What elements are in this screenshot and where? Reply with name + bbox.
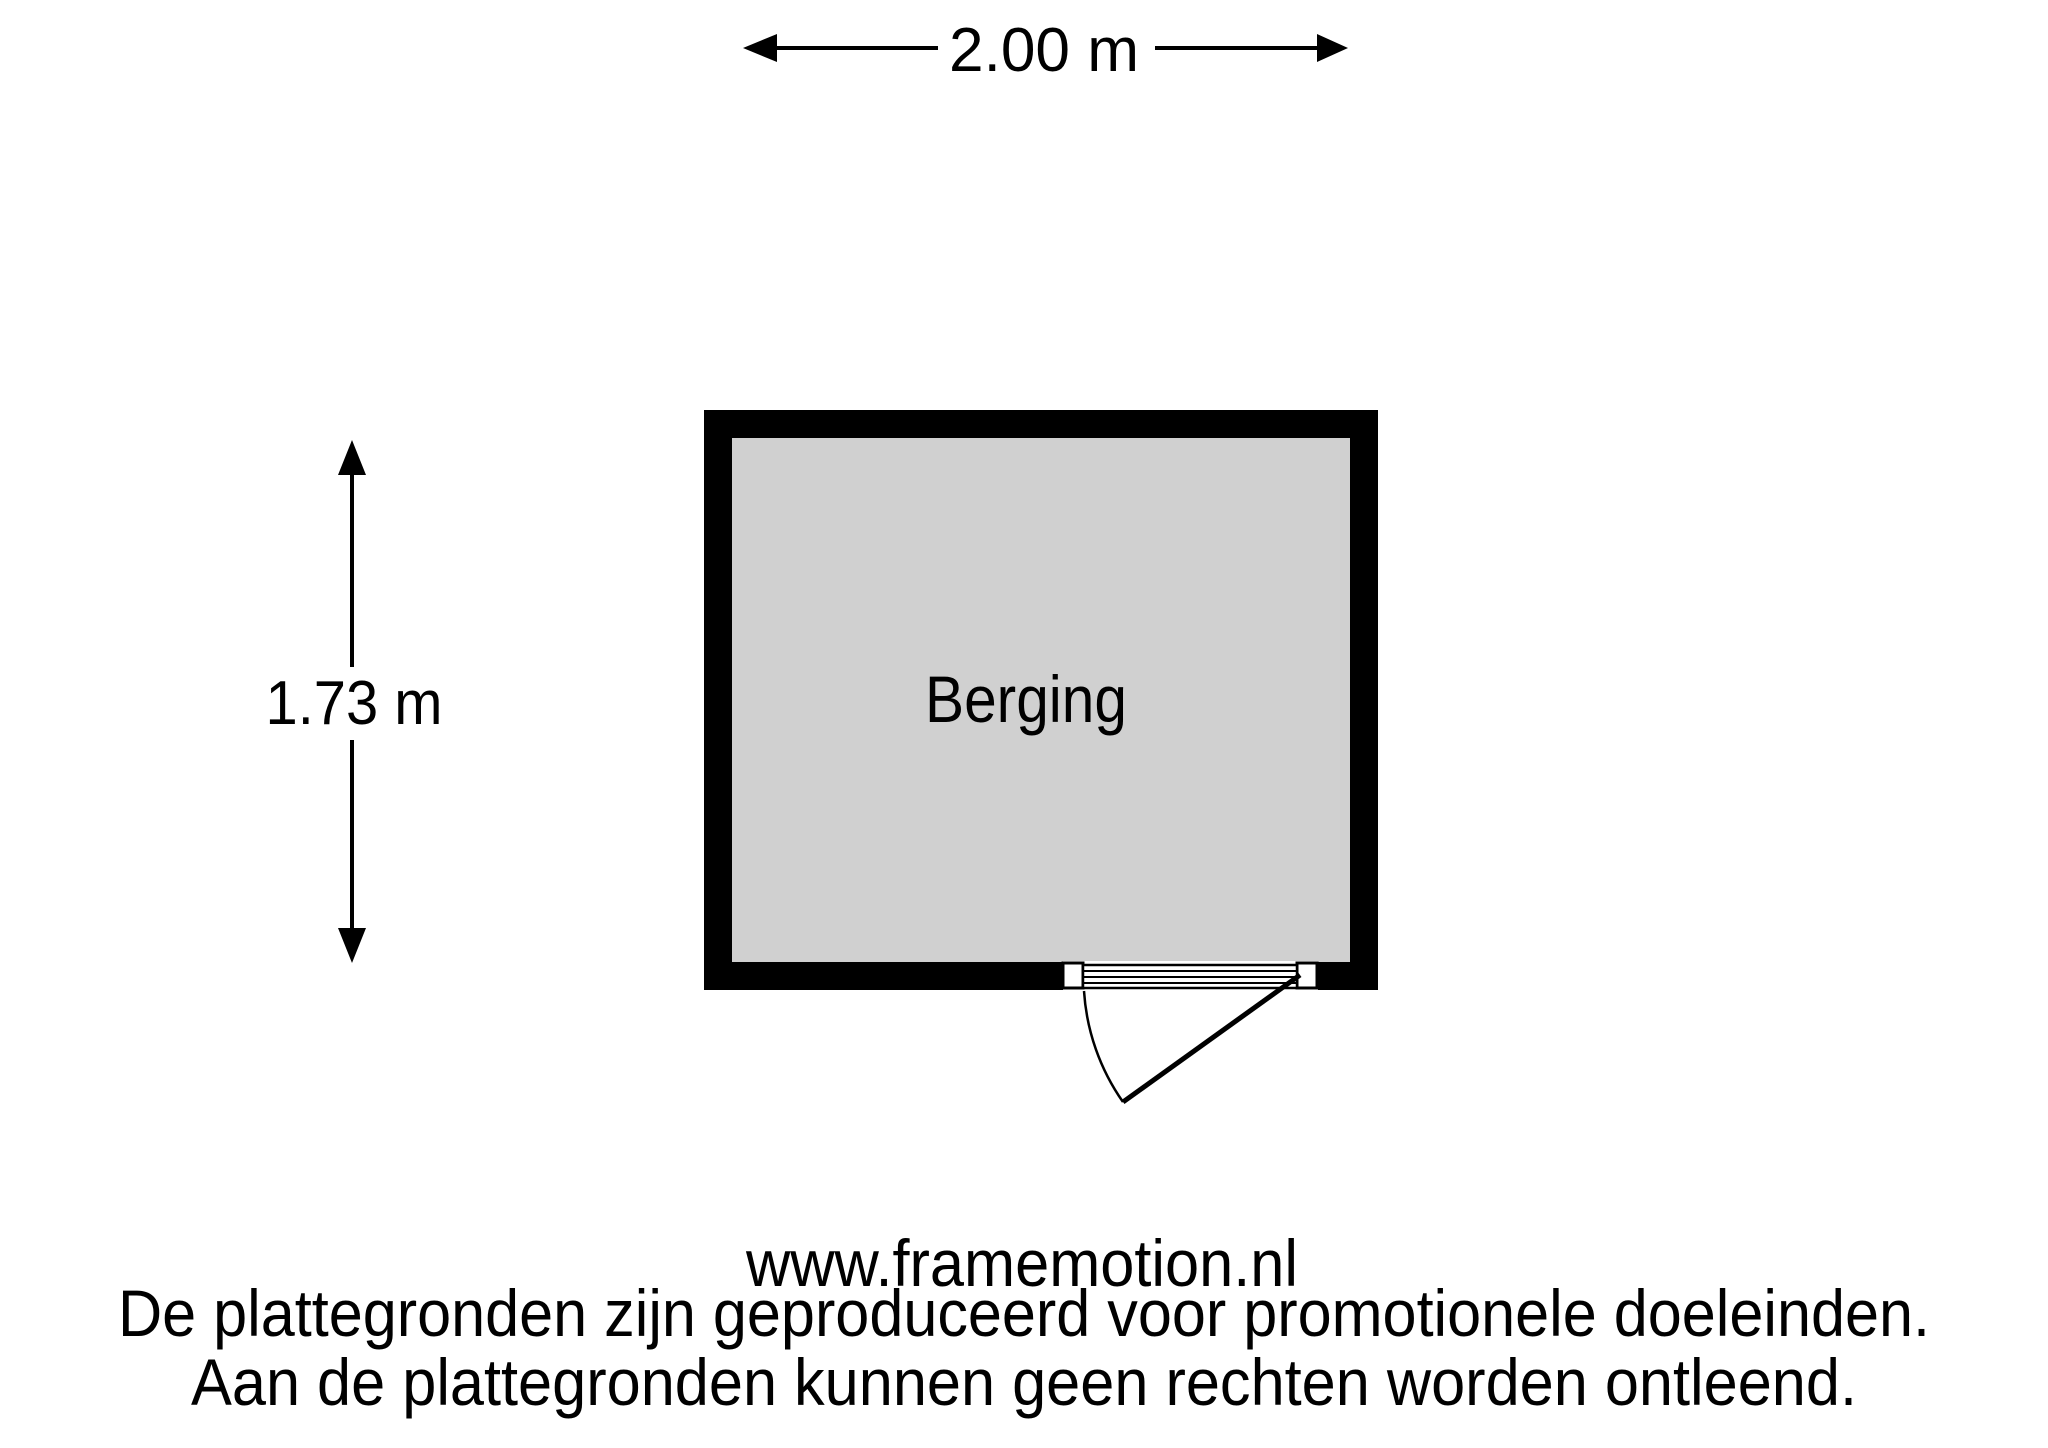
arrow-down-icon — [338, 928, 366, 963]
height-dimension-label: 1.73 m — [266, 669, 443, 738]
door-swing-arc — [1084, 991, 1123, 1102]
height-dimension-arrow: 1.73 m — [266, 440, 443, 963]
door-left-jamb — [1063, 963, 1083, 988]
arrow-right-icon — [1317, 34, 1348, 62]
width-dimension-arrow: 2.00 m — [743, 16, 1348, 85]
footer-disclaimer-line2: Aan de plattegronden kunnen geen rechten… — [191, 1345, 1857, 1419]
door — [1063, 961, 1318, 1102]
door-leaf — [1123, 975, 1300, 1102]
footer: www.framemotion.nl De plattegronden zijn… — [118, 1226, 1930, 1419]
floor-plan-canvas: 2.00 m 1.73 m Berging www.framemotion.nl… — [0, 0, 2048, 1448]
arrow-up-icon — [338, 440, 366, 475]
footer-disclaimer-line1: De plattegronden zijn geproduceerd voor … — [118, 1276, 1930, 1350]
room-label: Berging — [925, 662, 1127, 736]
room-berging: Berging — [704, 410, 1378, 990]
arrow-left-icon — [743, 34, 777, 62]
width-dimension-label: 2.00 m — [949, 16, 1139, 85]
